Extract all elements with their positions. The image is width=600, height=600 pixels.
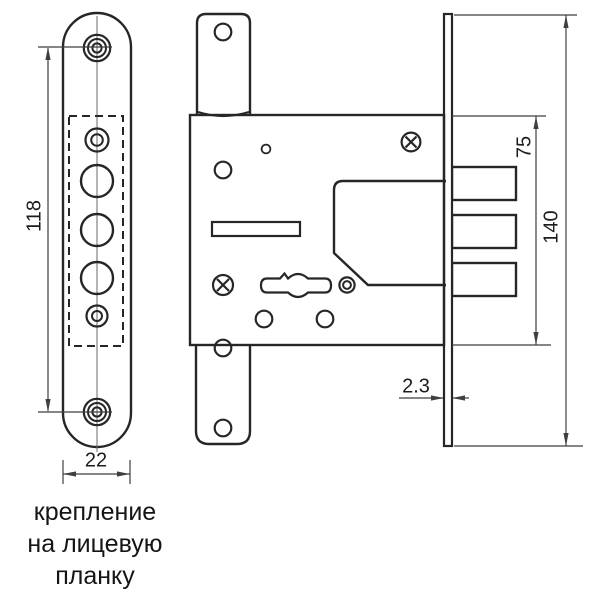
keyhole-slot (261, 274, 331, 298)
bottom-mounting-tab (196, 344, 250, 444)
dim-label-75: 75 (514, 136, 537, 158)
body-hole-small (262, 145, 271, 154)
cylinder-pin-hole (339, 277, 354, 292)
screw-icon (402, 133, 421, 152)
dim-label-140: 140 (541, 210, 564, 243)
caption: крепление на лицевую планку (14, 496, 176, 592)
deadbolts (452, 167, 516, 296)
edge-strip (444, 14, 452, 446)
caption-line: крепление (14, 496, 176, 528)
lock-technical-drawing: 118 22 75 140 2.3 крепление на лицевую п… (0, 0, 600, 600)
body-hole (215, 162, 232, 179)
screw-icon (213, 275, 233, 295)
caption-line: на лицевую (14, 528, 176, 560)
lock-body (190, 115, 446, 356)
dim-label-22: 22 (85, 450, 107, 473)
dim-label-2-3: 2.3 (402, 376, 430, 399)
dim-label-118: 118 (24, 200, 47, 232)
caption-line: планку (14, 560, 176, 592)
bolt-housing (334, 181, 446, 285)
faceplate (63, 13, 131, 452)
top-mounting-tab (197, 14, 250, 116)
body-slot (212, 222, 300, 236)
body-hole (317, 311, 334, 328)
body-hole (256, 311, 273, 328)
